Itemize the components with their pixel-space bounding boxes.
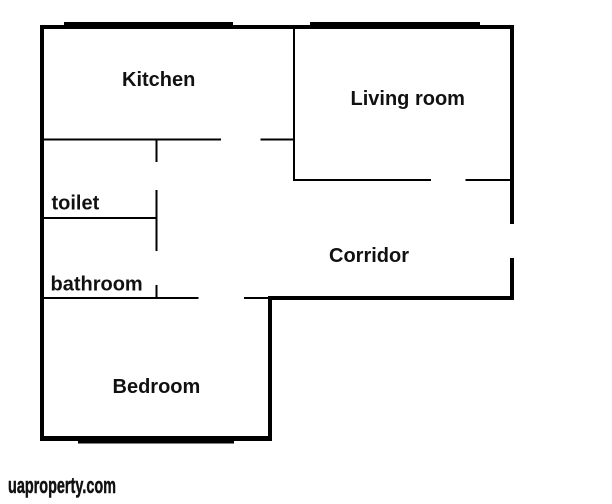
- svg-text:uaproperty.com: uaproperty.com: [8, 473, 116, 498]
- svg-text:Kitchen: Kitchen: [122, 69, 195, 91]
- svg-text:Living room: Living room: [351, 88, 465, 110]
- svg-text:toilet: toilet: [52, 193, 100, 215]
- svg-text:bathroom: bathroom: [51, 274, 143, 296]
- svg-text:Bedroom: Bedroom: [113, 376, 201, 398]
- svg-text:Corridor: Corridor: [329, 245, 409, 267]
